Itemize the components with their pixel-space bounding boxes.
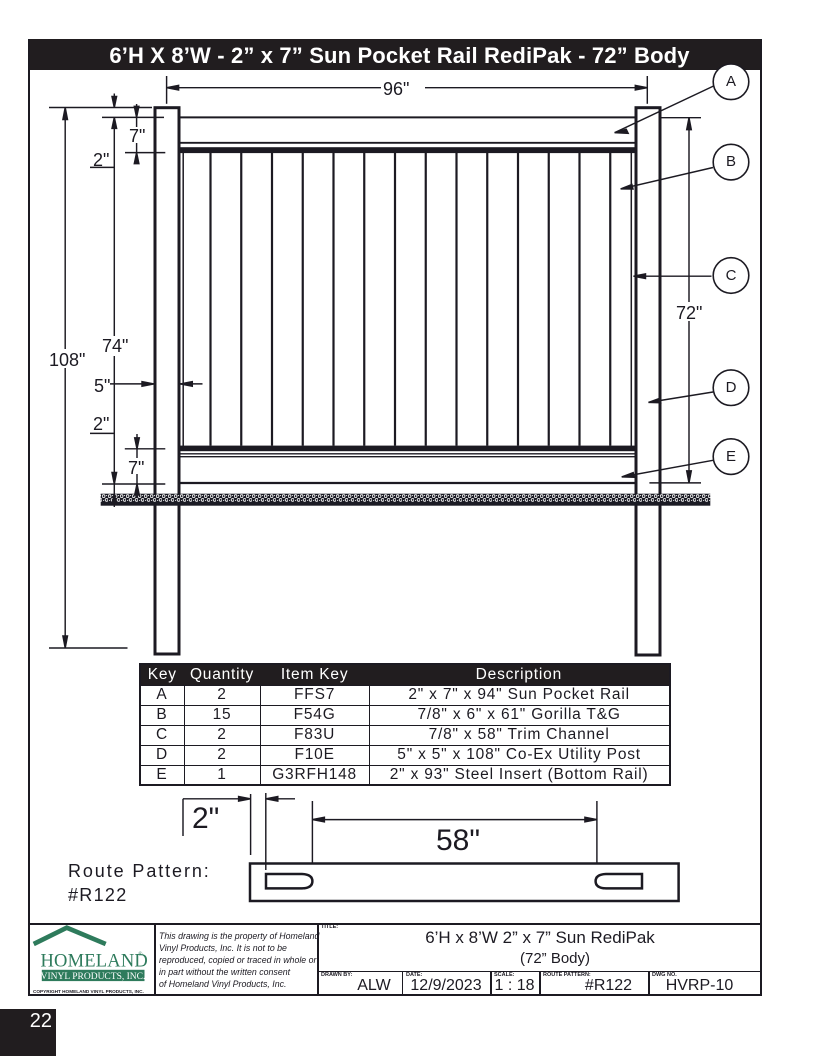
svg-text:VINYL PRODUCTS, INC.: VINYL PRODUCTS, INC. (41, 972, 146, 982)
svg-text:®: ® (138, 951, 143, 958)
svg-text:COPYRIGHT HOMELAND VINYL PRODU: COPYRIGHT HOMELAND VINYL PRODUCTS, INC. (33, 989, 144, 994)
svg-text:HOMELAND: HOMELAND (41, 952, 148, 972)
